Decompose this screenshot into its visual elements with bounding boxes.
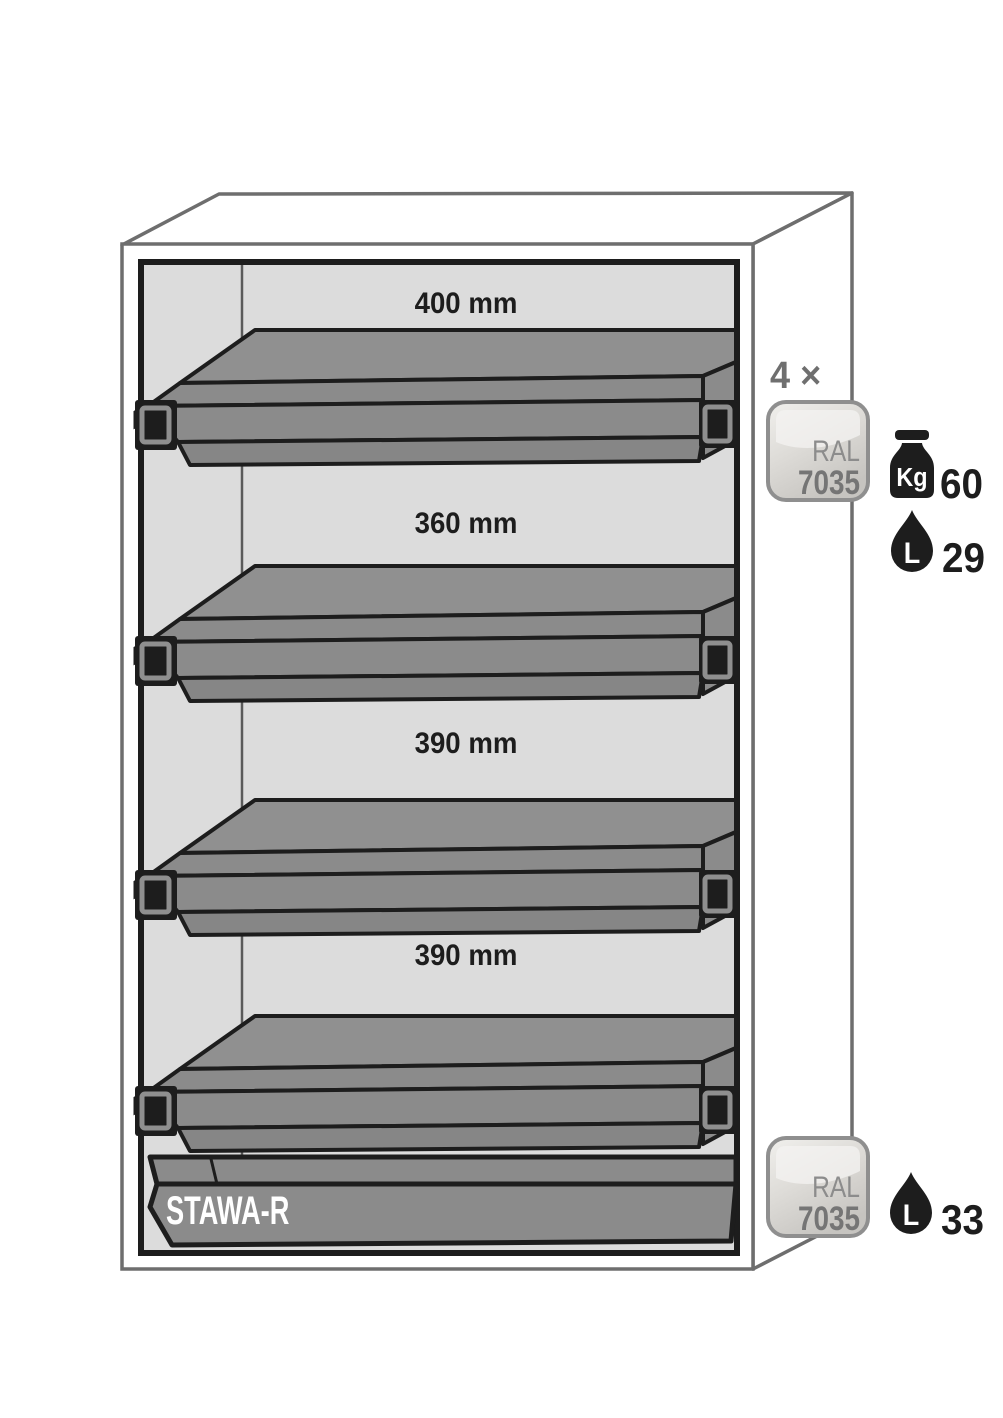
litre-drop-icon: L <box>890 1172 932 1234</box>
pullout-shelf-tray-4 <box>135 1016 737 1151</box>
pullout-shelf-tray-3 <box>135 800 737 935</box>
kg-unit-label: Kg <box>896 464 927 492</box>
sump-volume-value: 33 <box>941 1195 984 1243</box>
shelf-spacing-label-3: 390 mm <box>415 727 518 760</box>
shelf-spacing-label-2: 360 mm <box>415 507 518 540</box>
shelf-spacing-label-4: 390 mm <box>415 939 518 972</box>
litre-unit-label: L <box>904 537 920 571</box>
litre-unit-label: L <box>903 1199 919 1233</box>
shelf-load-value: 60 <box>940 459 983 507</box>
cabinet-top-face <box>122 193 852 245</box>
safety-cabinet-diagram: STAWA-R 400 mm 360 mm 390 mm 390 mm 4 × … <box>0 0 1003 1418</box>
sump-color-badge: RAL 7035 <box>768 1138 868 1238</box>
tray-count-label: 4 × <box>770 353 821 396</box>
ral-code: 7035 <box>798 463 860 501</box>
safety-cabinet-diagram-page: STAWA-R 400 mm 360 mm 390 mm 390 mm 4 × … <box>0 0 1003 1418</box>
kg-weight-icon: Kg <box>890 430 934 498</box>
pullout-shelf-tray-2 <box>135 566 737 701</box>
bottom-sump: STAWA-R <box>150 1157 736 1245</box>
shelf-color-badge: RAL 7035 <box>768 402 868 502</box>
shelf-spacing-label-1: 400 mm <box>415 287 518 320</box>
litre-drop-icon: L <box>891 510 933 572</box>
sump-model-label: STAWA-R <box>166 1189 289 1233</box>
shelf-volume-value: 29 <box>942 533 985 581</box>
ral-code: 7035 <box>798 1199 860 1237</box>
pullout-shelf-tray-1 <box>135 330 737 465</box>
